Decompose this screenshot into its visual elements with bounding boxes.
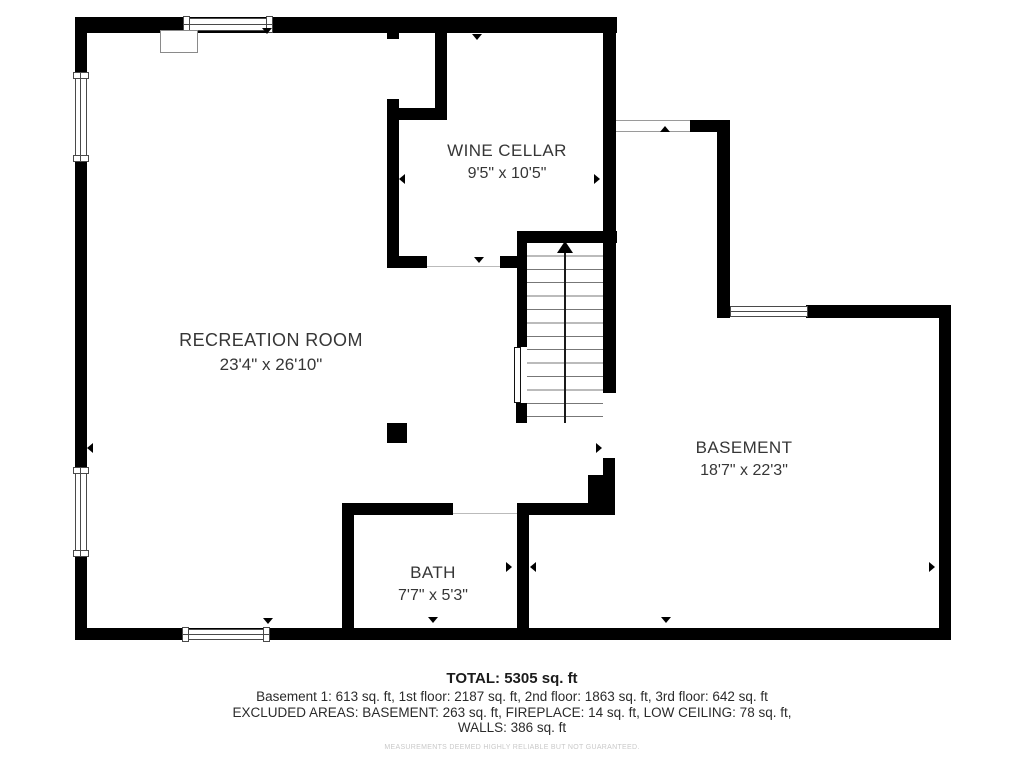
marker-bath-right-icon [506,562,512,572]
room-dimensions: 9'5" x 10'5" [447,165,567,183]
wall-wine-cellar-bottom-stub [500,256,518,268]
wall-right [939,305,951,640]
wall-landing-bottom [517,503,615,515]
marker-basement-left-icon [530,562,536,572]
support-post [387,423,407,443]
room-label-bath: BATH 7'7" x 5'3" [398,563,468,605]
marker-winecellar-right-icon [594,174,600,184]
wall-chase-right [435,33,447,120]
wall-landing-right-upper [603,458,615,475]
marker-entry-door-icon [660,126,670,132]
wall-wine-cellar-left [387,99,399,268]
excluded-areas-text: EXCLUDED AREAS: BASEMENT: 263 sq. ft, FI… [0,705,1024,721]
room-name: BATH [398,563,468,583]
room-name: RECREATION ROOM [179,330,363,351]
room-name: BASEMENT [696,438,793,458]
marker-basement-bottom-icon [661,617,671,623]
wall-wine-cellar-bottom [387,256,427,268]
staircase-up-arrow-icon [557,241,573,253]
marker-winecellar-top-icon [472,34,482,40]
wall-top [75,17,617,33]
marker-recroom-top-icon [262,28,272,34]
fireplace-niche [160,30,198,53]
marker-bath-top-icon [428,507,438,513]
window-cap [73,550,89,557]
disclaimer-text: MEASUREMENTS DEEMED HIGHLY RELIABLE BUT … [0,744,1024,751]
wall-wine-cellar-right [603,17,616,393]
wall-stairs-left [517,243,527,347]
marker-winecellar-left-icon [399,174,405,184]
window-cap [182,627,189,642]
window-cap [263,627,270,642]
marker-landing-door-icon [596,443,602,453]
room-label-basement: BASEMENT 18'7" x 22'3" [696,438,793,480]
excluded-areas-text-2: WALLS: 386 sq. ft [0,720,1024,736]
marker-bath-bottom-icon [428,617,438,623]
window-bottom-wall [182,629,270,640]
wall-basement-top [806,305,951,318]
area-summary: TOTAL: 5305 sq. ft Basement 1: 613 sq. f… [0,670,1024,751]
wall-corridor-top [690,120,730,132]
door-opening-bath [453,504,517,514]
total-area-text: TOTAL: 5305 sq. ft [0,670,1024,687]
marker-basement-right-icon [929,562,935,572]
wall-chase-left-stub [387,33,399,39]
room-dimensions: 7'7" x 5'3" [398,587,468,605]
marker-bath-left-icon [346,564,352,574]
staircase-railing [514,347,521,403]
window-left-wall-lower [75,467,87,557]
marker-recroom-left-icon [87,443,93,453]
room-label-recreation-room: RECREATION ROOM 23'4" x 26'10" [179,330,363,375]
staircase-direction-line [564,252,566,423]
room-label-wine-cellar: WINE CELLAR 9'5" x 10'5" [447,141,567,183]
window-cap [73,467,89,474]
marker-winecellar-door-icon [474,257,484,263]
room-dimensions: 18'7" x 22'3" [696,462,793,480]
door-opening-entry [616,120,690,132]
wall-corridor-right [717,120,730,318]
window-cap [73,155,89,162]
marker-recroom-bottom-icon [263,618,273,624]
window-left-wall-upper [75,72,87,162]
wall-bath-right [517,503,529,628]
door-opening-wine-cellar [427,257,500,267]
floor-areas-text: Basement 1: 613 sq. ft, 1st floor: 2187 … [0,689,1024,705]
window-cap [73,72,89,79]
room-name: WINE CELLAR [447,141,567,161]
room-dimensions: 23'4" x 26'10" [179,355,363,375]
floor-plan: WINE CELLAR 9'5" x 10'5" RECREATION ROOM… [0,0,1024,768]
wall-stairs-left-stub [516,403,527,423]
window-basement-top [730,306,808,317]
